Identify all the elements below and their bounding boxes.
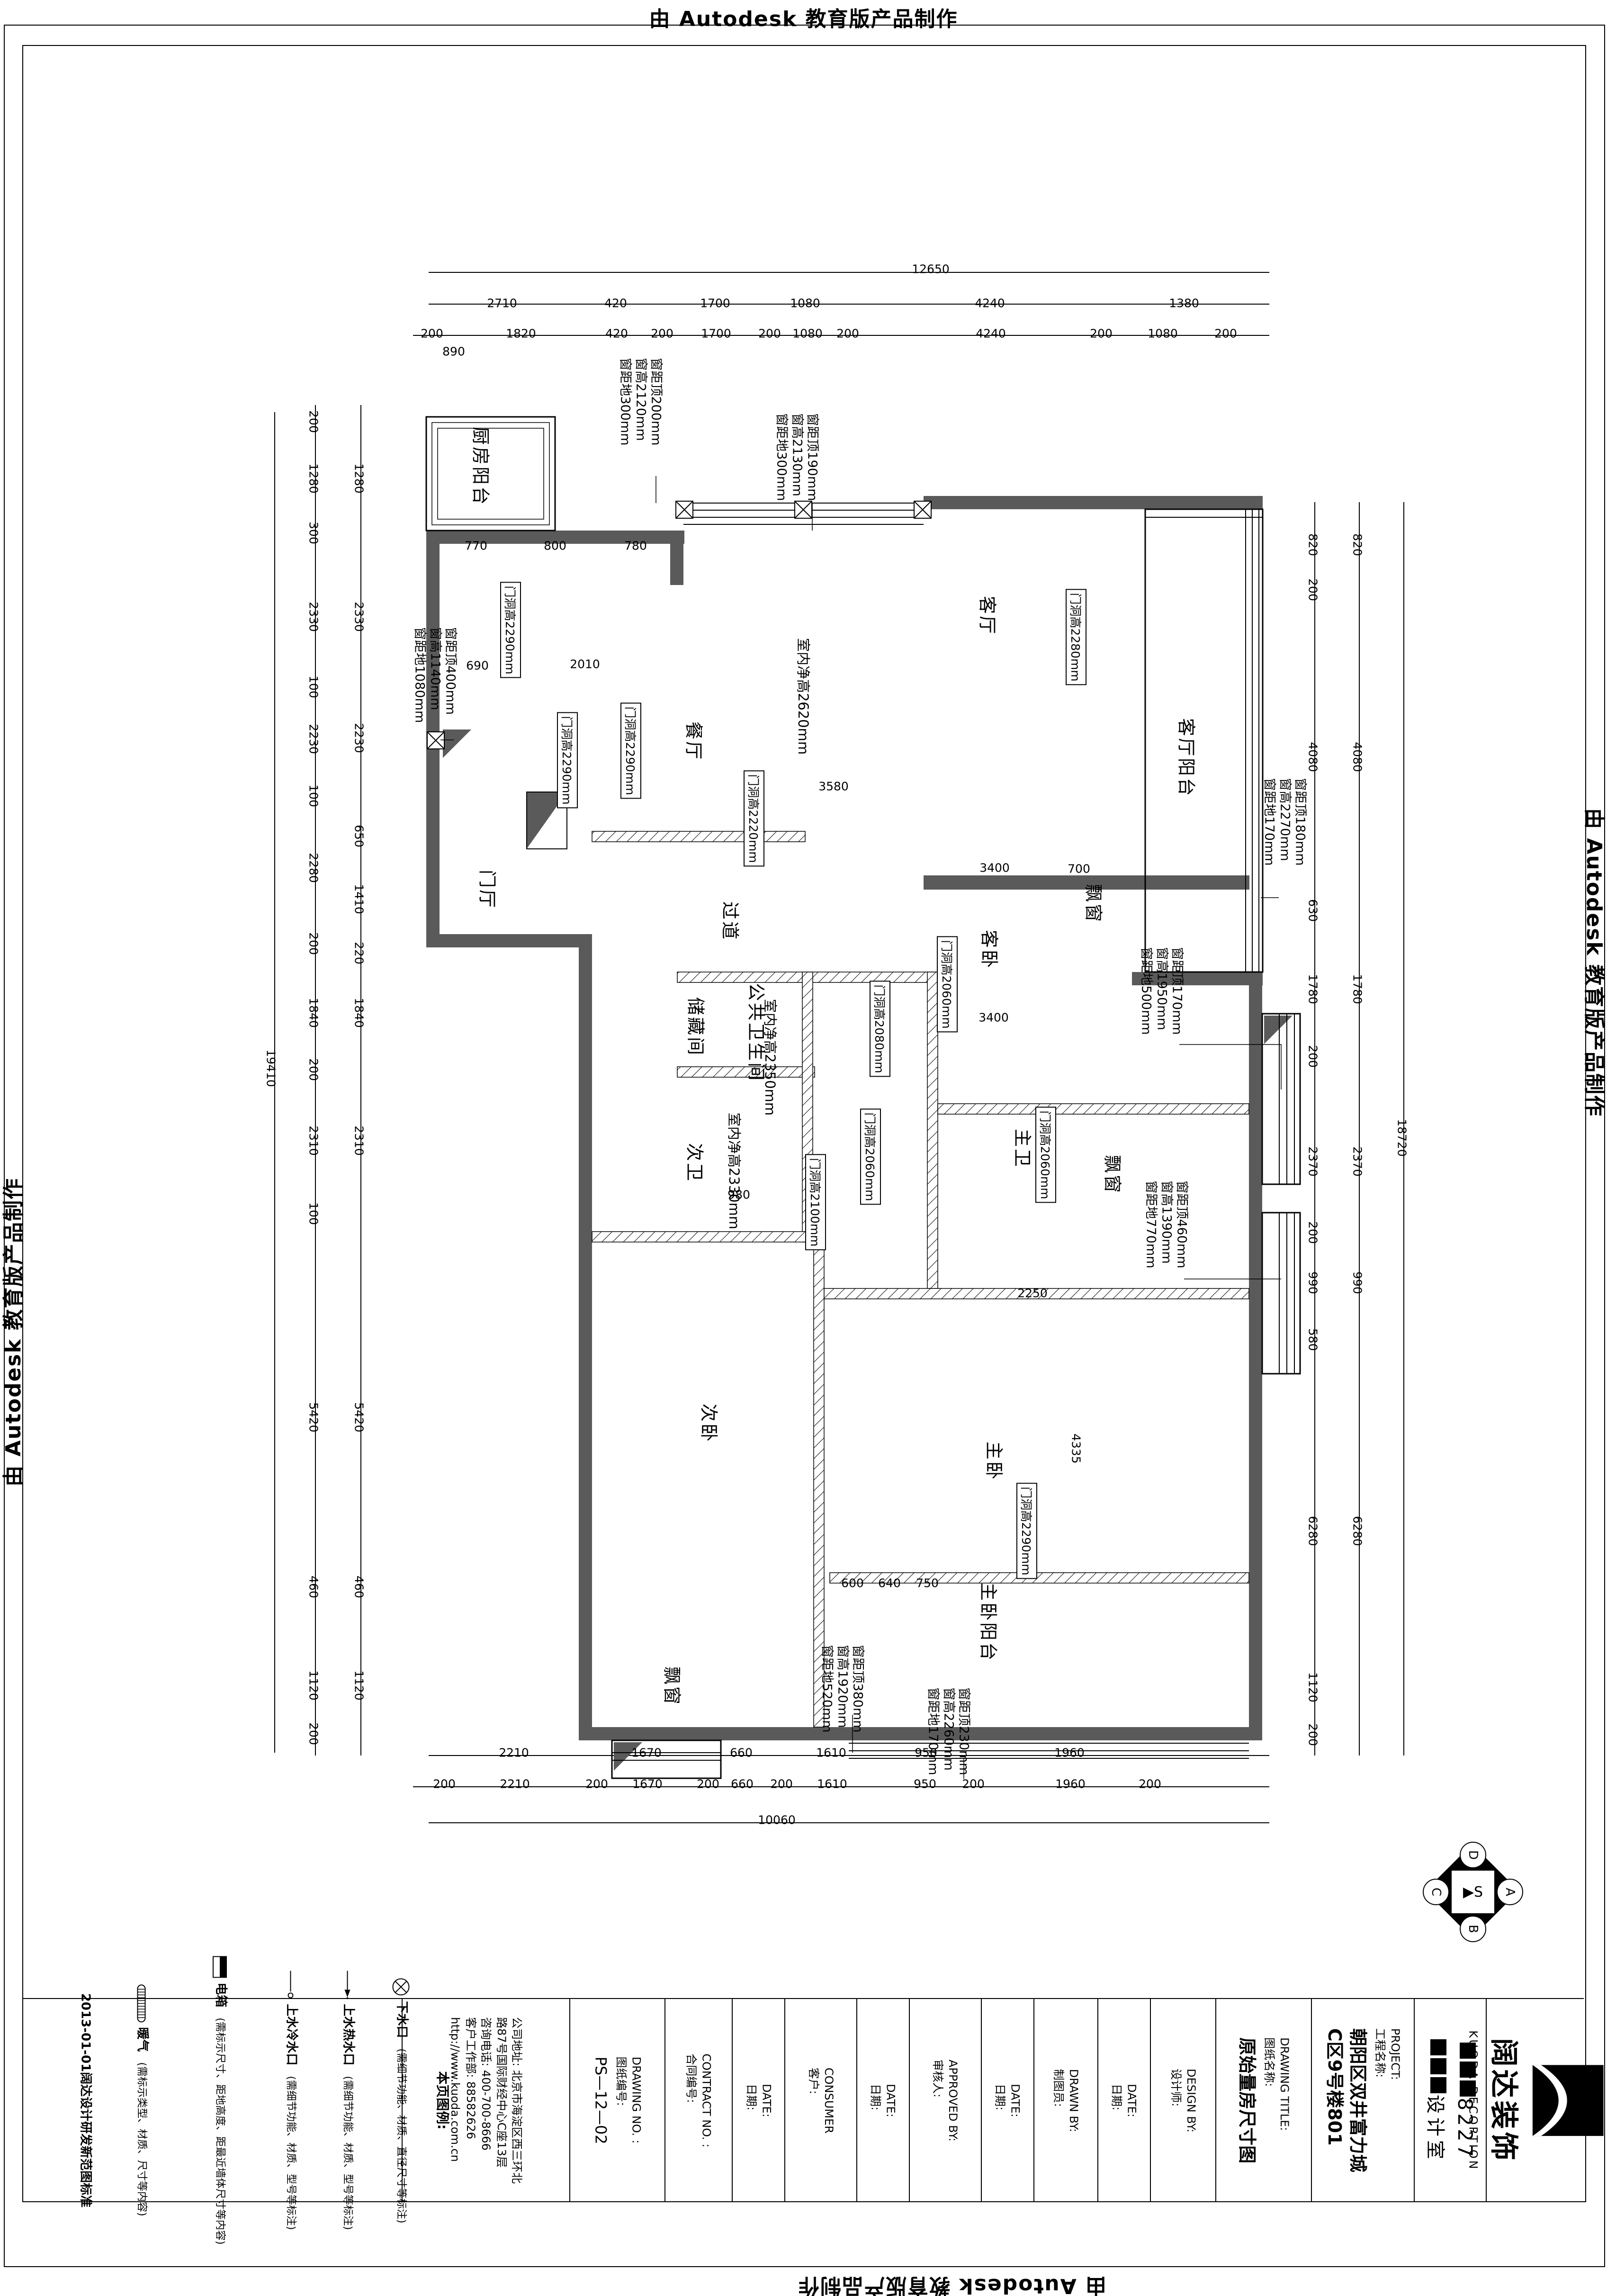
window-size-note: 窗距顶170mm 窗高1950mm 窗距地500mm <box>1138 947 1184 1035</box>
dimension-value: 200 <box>1306 1723 1320 1746</box>
room-label: 主卫 <box>1011 1129 1037 1169</box>
field-label: DESIGN BY: 设计师: <box>1168 2069 1199 2133</box>
dimension-value: 1960 <box>1054 1746 1085 1760</box>
compass-letter-left: C <box>1423 1879 1449 1905</box>
dimension-value: 100 <box>307 675 321 698</box>
dimension-value: 3580 <box>818 780 849 793</box>
dimension-value: 200 <box>1214 327 1237 341</box>
dimension-value: 2370 <box>1306 1146 1320 1177</box>
dimension-value: 990 <box>1306 1271 1320 1294</box>
dimension-value: 650 <box>352 825 366 847</box>
dimension-value: 200 <box>307 1722 321 1745</box>
dimension-value: 700 <box>1068 862 1090 876</box>
dimension-value: 200 <box>585 1777 608 1791</box>
room-label: 次卧 <box>698 1404 724 1443</box>
dimension-value: 200 <box>421 327 443 341</box>
dimension-value: 690 <box>466 659 489 673</box>
dimension-value: 2230 <box>307 724 321 754</box>
dimension-value: 2310 <box>307 1125 321 1156</box>
titleblock-field-consumer: CONSUMER 客户: <box>785 1999 857 2202</box>
dimension-value: 1610 <box>816 1746 846 1760</box>
logo-en-text: KUODA DECORTION <box>1467 2030 1480 2170</box>
titleblock-field-date1: DATE: 日期: <box>733 1999 785 2202</box>
dimension-value: 12650 <box>912 262 950 276</box>
window-size-note: 窗距顶190mm 窗高2130mm 窗距地300mm <box>773 413 819 501</box>
north-compass: D A B C ▶S <box>1425 1844 1519 1938</box>
dimension-value: 1080 <box>1148 327 1178 341</box>
dimension-value: 200 <box>1306 578 1320 601</box>
compass-letter-bottom: B <box>1460 1916 1486 1942</box>
field-label: PROJECT: 工程名称: <box>1372 2028 1403 2172</box>
drawing-sheet: 由 Autodesk 教育版产品制作 由 Autodesk 教育版产品制作 由 … <box>0 0 1607 2296</box>
dimension-value: 6280 <box>1306 1516 1320 1546</box>
door-height-note: 门洞高2080mm <box>870 981 890 1077</box>
dimension-value: 890 <box>442 345 465 359</box>
dimension-value: 460 <box>307 1576 321 1598</box>
dimension-value: 1080 <box>790 297 820 310</box>
dimension-value: 1670 <box>631 1746 662 1760</box>
room-label: 过道 <box>719 901 745 941</box>
dimension-value: 1700 <box>700 297 730 310</box>
door-height-note: 门洞高2060mm <box>937 936 958 1032</box>
kuoda-logo-icon <box>1533 2065 1604 2136</box>
window-size-note: 窗距顶200mm 窗高2120mm 窗距地300mm <box>617 358 663 445</box>
field-label: DATE: 日期: <box>743 2084 774 2117</box>
floorplan-geometry <box>0 0 1607 2296</box>
dimension-value: 200 <box>1090 327 1113 341</box>
door-height-note: 门洞高2060mm <box>860 1108 881 1205</box>
logo-column: 阔达装饰 KUODA DECORTION <box>1487 1999 1584 2202</box>
dimension-value: 770 <box>465 539 487 553</box>
titleblock-field-design_by: DESIGN BY: 设计师: <box>1151 1999 1216 2202</box>
dimension-value: 2010 <box>570 657 600 671</box>
dimension-value: 200 <box>307 1058 321 1081</box>
dimension-value: 1280 <box>352 463 366 494</box>
dimension-value: 200 <box>758 327 781 341</box>
door-height-note: 门洞高2290mm <box>1016 1483 1037 1579</box>
dimension-value: 1780 <box>1351 974 1365 1004</box>
titleblock-field-drawing_title: DRAWING TITLE: 图纸名称:原始量房尺寸图 <box>1216 1999 1312 2202</box>
dimension-value: 3400 <box>979 1011 1009 1025</box>
dimension-value: 780 <box>624 539 647 553</box>
door-height-note: 门洞高2220mm <box>744 770 764 866</box>
dimension-value: 2330 <box>352 602 366 632</box>
room-label: 厨房阳台 <box>469 427 495 506</box>
dimension-value: 2210 <box>499 1746 529 1760</box>
dimension-value: 1820 <box>506 327 536 341</box>
dimension-value: 2210 <box>500 1777 530 1791</box>
dimension-value: 200 <box>770 1777 793 1791</box>
dimension-value: 460 <box>352 1576 366 1598</box>
field-label: DRAWING TITLE: 图纸名称: <box>1261 2037 1292 2163</box>
dimension-value: 1410 <box>352 884 366 914</box>
dimension-value: 220 <box>352 942 366 964</box>
dimension-value: 1280 <box>307 463 321 494</box>
room-label: 客厅 <box>976 596 1002 636</box>
titleblock-field-date3: DATE: 日期: <box>982 1999 1034 2202</box>
door-height-note: 门洞高2290mm <box>500 582 521 678</box>
field-label: DRAWING NO. : 图纸编号: <box>613 2056 644 2144</box>
dimension-value: 660 <box>730 1746 753 1760</box>
titleblock-field-date4: DATE: 日期: <box>1098 1999 1151 2202</box>
dimension-value: 200 <box>1306 1221 1320 1244</box>
dimension-value: 2330 <box>307 602 321 632</box>
titleblock-field-approved_by: APPROVED BY: 审核人: <box>910 1999 982 2202</box>
dimension-value: 420 <box>605 327 628 341</box>
window-size-note: 窗距顶400mm 窗高1140mm 窗距地1080mm <box>412 627 458 723</box>
dimension-value: 950 <box>914 1777 936 1791</box>
compass-center-letter: S <box>1474 1884 1483 1900</box>
dimension-value: 640 <box>878 1576 901 1590</box>
dimension-value: 990 <box>1351 1271 1365 1294</box>
legend-item-hot-water: 上水热水口 (需细节功能、材质、型号等标注) <box>341 1971 359 2230</box>
dimension-value: 19410 <box>264 1049 278 1087</box>
field-label: DATE: 日期: <box>992 2084 1023 2117</box>
titleblock-field-drawing_no: DRAWING NO. : 图纸编号:PS—12—02 <box>570 1999 666 2202</box>
dimension-value: 4335 <box>1069 1433 1083 1464</box>
company-address: 公司地址: 北京市海淀区西三环北 路87号国际财经中心C座13层 咨询电话: 4… <box>448 2017 524 2184</box>
dimension-value: 5420 <box>352 1402 366 1432</box>
dimension-value: 420 <box>604 297 627 310</box>
compass-center: ▶S <box>1451 1870 1495 1914</box>
door-height-note: 门洞高2280mm <box>1066 589 1086 685</box>
dimension-value: 1610 <box>817 1777 847 1791</box>
company-column: 公司地址: 北京市海淀区西三环北 路87号国际财经中心C座13层 咨询电话: 4… <box>403 1999 570 2202</box>
dimension-value: 10060 <box>758 1813 796 1827</box>
dimension-value: 580 <box>1306 1328 1320 1351</box>
dimension-value: 1840 <box>307 998 321 1028</box>
dimension-value: 1780 <box>1306 974 1320 1004</box>
window-size-note: 窗距顶380mm 窗高1920mm 窗距地520mm <box>819 1645 865 1732</box>
dimension-value: 3400 <box>979 861 1010 875</box>
ceiling-height-note: 室内净高2350mm <box>761 999 781 1116</box>
dimension-value: 2280 <box>307 853 321 883</box>
dimension-value: 2230 <box>352 723 366 753</box>
field-value: PS—12—02 <box>591 2056 610 2144</box>
dimension-value: 200 <box>433 1777 456 1791</box>
room-label: 飘窗 <box>1082 884 1108 924</box>
dimension-value: 800 <box>544 539 566 553</box>
room-label: 客卧 <box>978 930 1004 970</box>
field-label: DATE: 日期: <box>1109 2084 1140 2117</box>
room-label: 门厅 <box>476 870 502 909</box>
dimension-value: 1840 <box>352 998 366 1028</box>
compass-letter-right: A <box>1497 1879 1523 1905</box>
title-block: 本页图例:下水口 (需细节功能、材质、直径尺寸等标注)上水热水口 (需细节功能、… <box>23 1998 1584 2202</box>
dimension-value: 2310 <box>352 1125 366 1156</box>
window-size-note: 窗距顶460mm 窗高1390mm 窗距地770mm <box>1143 1180 1189 1268</box>
legend-item-power-box: 电箱 (需标示尺寸、距地高度、距最近墙体尺寸等内容) <box>213 1956 231 2244</box>
field-label: DRAWN BY: 制图员: <box>1050 2069 1081 2132</box>
room-label: 储藏间 <box>684 997 710 1057</box>
dimension-value: 820 <box>1351 533 1365 556</box>
compass-arrow-icon: ▶ <box>1463 1884 1474 1900</box>
dimension-value: 2250 <box>1017 1287 1048 1300</box>
dimension-value: 600 <box>841 1576 864 1590</box>
room-label: 主卧 <box>983 1441 1009 1481</box>
studio-name: 设计室 <box>1424 2095 1446 2163</box>
titleblock-field-project: PROJECT: 工程名称:朝阳区双井富力城 C区9号楼801 <box>1312 1999 1415 2202</box>
room-label: 飘窗 <box>1101 1155 1127 1195</box>
room-label: 次卫 <box>683 1143 709 1183</box>
dimension-value: 100 <box>307 1202 321 1225</box>
compass-letter-top: D <box>1460 1842 1486 1868</box>
room-label: 客厅阳台 <box>1175 718 1201 798</box>
field-label: CONTRACT NO. : 合同编号: <box>683 2053 714 2147</box>
door-height-note: 门洞高2100mm <box>805 1154 826 1250</box>
dimension-value: 1380 <box>1169 297 1199 310</box>
door-height-note: 门洞高2290mm <box>557 712 578 808</box>
dimension-value: 2710 <box>487 297 517 310</box>
dimension-value: 660 <box>731 1777 754 1791</box>
field-value: 朝阳区双井富力城 C区9号楼801 <box>1323 2028 1370 2172</box>
dimension-value: 4240 <box>975 297 1005 310</box>
titleblock-field-date2: DATE: 日期: <box>857 1999 910 2202</box>
dimension-value: 4080 <box>1306 742 1320 772</box>
door-height-note: 门洞高2060mm <box>1035 1107 1056 1203</box>
dimension-value: 200 <box>307 932 321 955</box>
dimension-value: 5420 <box>307 1402 321 1432</box>
door-height-note: 门洞高2290mm <box>620 702 641 799</box>
standard-note: 2013-01-01阔达设计研发新范图标准 <box>78 1993 96 2207</box>
logo-cjk-text: 阔达装饰 <box>1486 2038 1527 2163</box>
dimension-value: 200 <box>1306 1045 1320 1068</box>
dimension-value: 200 <box>836 327 859 341</box>
dimension-value: 200 <box>307 410 321 433</box>
dimension-value: 200 <box>962 1777 985 1791</box>
dimension-value: 820 <box>1306 533 1320 556</box>
field-value: 原始量房尺寸图 <box>1235 2037 1258 2163</box>
window-size-note: 窗距顶180mm 窗高2270mm 窗距地170mm <box>1261 778 1307 865</box>
dimension-value: 750 <box>916 1576 939 1590</box>
dimension-value: 1080 <box>792 327 823 341</box>
field-label: CONSUMER 客户: <box>806 2068 836 2134</box>
dimension-value: 6280 <box>1351 1516 1365 1546</box>
window-size-note: 窗距顶230mm 窗高2260mm 窗距地170mm <box>925 1687 971 1775</box>
dimension-value: 1960 <box>1055 1777 1086 1791</box>
dimension-value: 1670 <box>632 1777 663 1791</box>
ceiling-height-note: 室内净高2620mm <box>794 638 814 755</box>
dimension-value: 200 <box>697 1777 719 1791</box>
dimension-value: 4240 <box>976 327 1006 341</box>
dimension-value: 200 <box>651 327 673 341</box>
dimension-value: 100 <box>307 784 321 807</box>
titleblock-field-contract_no: CONTRACT NO. : 合同编号: <box>665 1999 733 2202</box>
field-label: APPROVED BY: 审核人: <box>930 2060 961 2142</box>
dimension-value: 300 <box>307 522 321 544</box>
dimension-value: 1120 <box>1306 1672 1320 1702</box>
legend-item-cold-water: 上水冷水口 (需细节功能、材质、型号等标注) <box>284 1971 302 2230</box>
dimension-value: 1120 <box>307 1670 321 1701</box>
legend-item-radiator: 暖气 (需标示类型、材质、尺寸等内容) <box>135 1984 153 2216</box>
dimension-value: 1120 <box>352 1670 366 1701</box>
dimension-value: 1700 <box>701 327 731 341</box>
room-label: 飘窗 <box>661 1666 687 1706</box>
room-label: 餐厅 <box>682 721 709 761</box>
studio-squares-row2: 设计室 <box>1423 2038 1451 2163</box>
dimension-value: 4080 <box>1351 742 1365 772</box>
field-label: DATE: 日期: <box>868 2084 898 2117</box>
dimension-value: 18720 <box>1395 1119 1409 1157</box>
dimension-value: 200 <box>1139 1777 1161 1791</box>
ceiling-height-note: 室内净高2330mm <box>725 1113 745 1229</box>
room-label: 主卧阳台 <box>977 1583 1003 1662</box>
titleblock-field-drawn_by: DRAWN BY: 制图员: <box>1034 1999 1098 2202</box>
legend-column: 本页图例:下水口 (需细节功能、材质、直径尺寸等标注)上水热水口 (需细节功能、… <box>23 1999 403 2202</box>
dimension-value: 2370 <box>1351 1146 1365 1177</box>
dimension-value: 630 <box>1306 899 1320 922</box>
